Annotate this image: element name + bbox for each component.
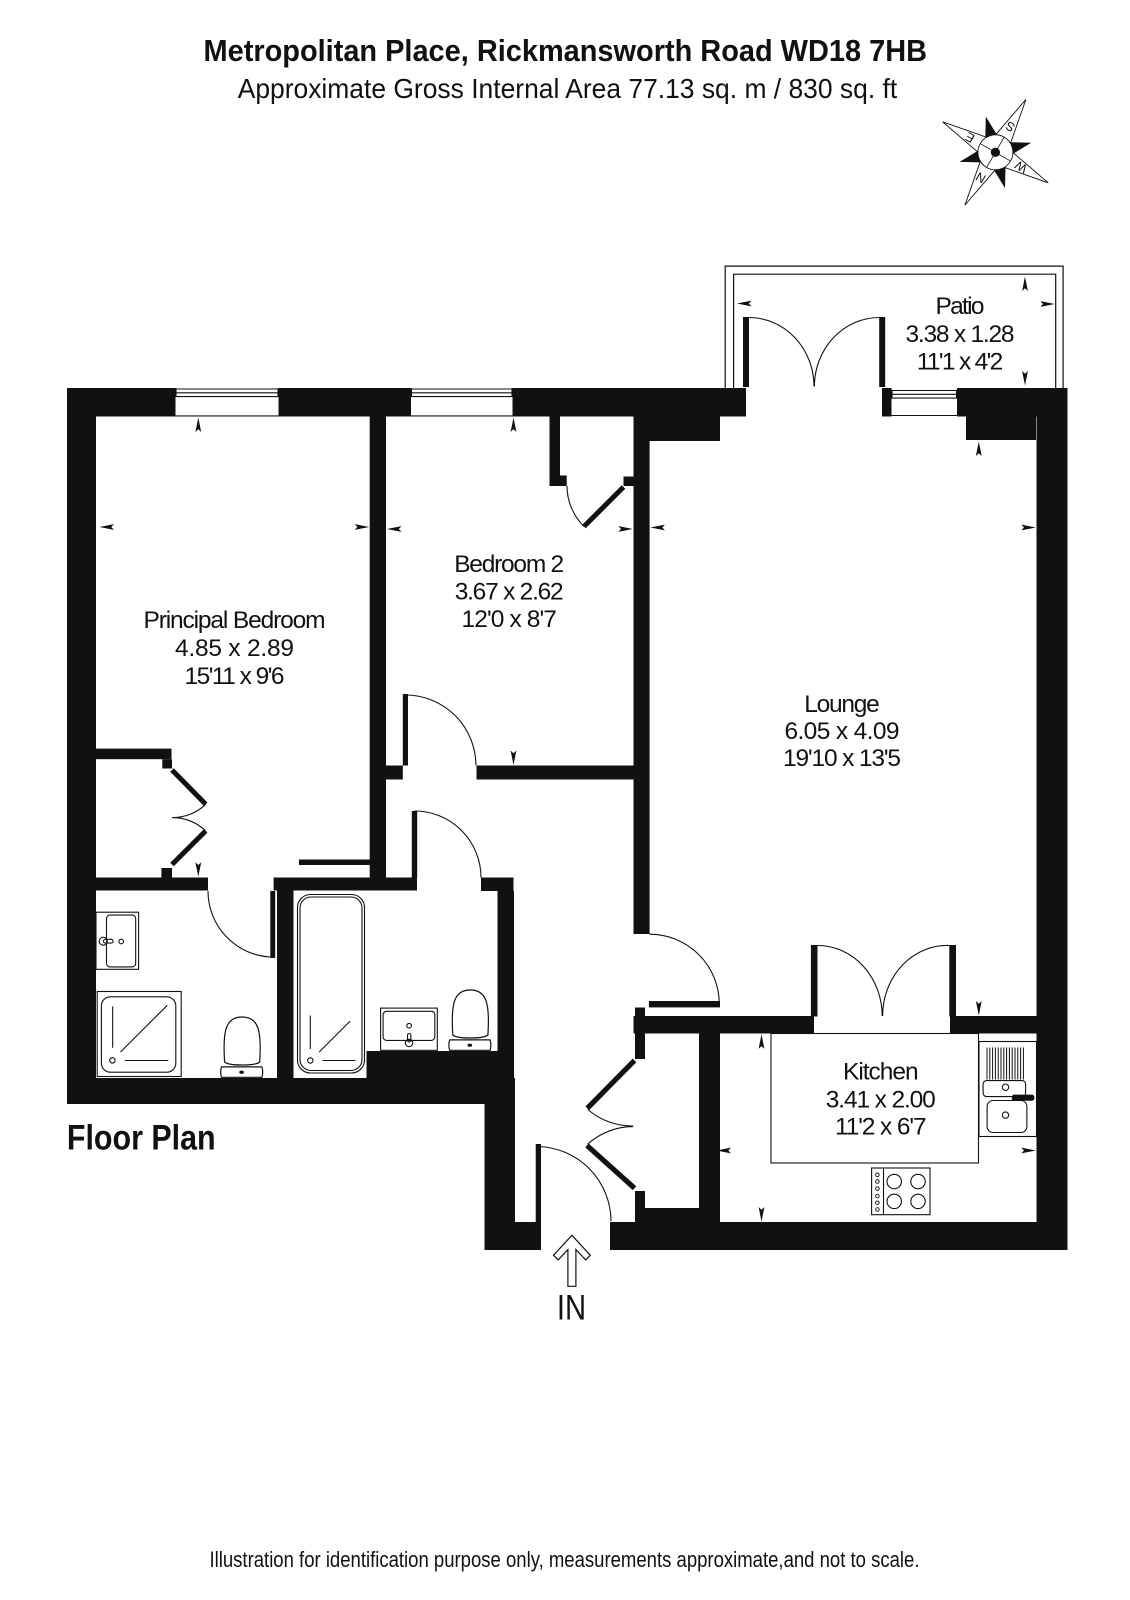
svg-text:Approximate Gross Internal Are: Approximate Gross Internal Area 77.13 sq…: [238, 73, 898, 104]
svg-text:3.38 x 1.28: 3.38 x 1.28: [906, 321, 1015, 348]
svg-text:3.41 x 2.00: 3.41 x 2.00: [826, 1086, 936, 1113]
svg-text:Principal Bedroom: Principal Bedroom: [144, 607, 326, 634]
svg-text:4.85 x 2.89: 4.85 x 2.89: [175, 635, 294, 662]
svg-text:12'0 x 8'7: 12'0 x 8'7: [461, 606, 557, 633]
svg-text:IN: IN: [557, 1288, 586, 1327]
svg-text:Metropolitan Place, Rickmanswo: Metropolitan Place, Rickmansworth Road W…: [204, 33, 928, 68]
svg-text:3.67 x 2.62: 3.67 x 2.62: [455, 579, 564, 606]
svg-text:Floor Plan: Floor Plan: [67, 1119, 216, 1158]
svg-text:Bedroom 2: Bedroom 2: [454, 551, 564, 578]
svg-text:11'1 x 4'2: 11'1 x 4'2: [917, 349, 1004, 376]
svg-text:Lounge: Lounge: [804, 691, 880, 718]
svg-text:Patio: Patio: [936, 293, 985, 320]
svg-text:19'10 x 13'5: 19'10 x 13'5: [783, 745, 901, 772]
svg-text:11'2 x 6'7: 11'2 x 6'7: [835, 1113, 927, 1140]
svg-text:Kitchen: Kitchen: [843, 1059, 919, 1086]
svg-text:6.05 x 4.09: 6.05 x 4.09: [785, 718, 900, 745]
svg-text:Illustration for identificatio: Illustration for identification purpose …: [210, 1547, 920, 1572]
svg-text:15'11 x 9'6: 15'11 x 9'6: [185, 663, 285, 690]
